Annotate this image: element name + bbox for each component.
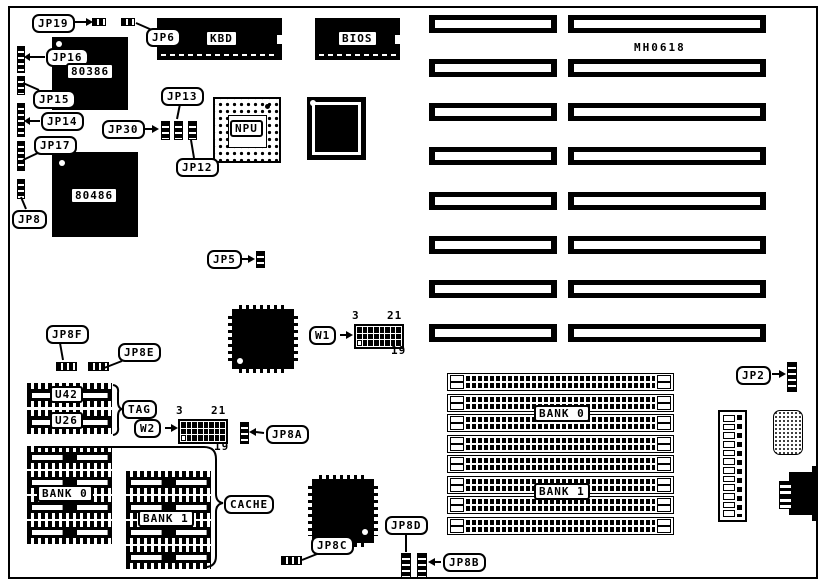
jumper-label-jp12: JP12 (176, 158, 219, 177)
jumper-label-jp17: JP17 (34, 136, 77, 155)
chip-label-u42: U42 (50, 386, 83, 403)
w1-pin3-number: 3 (352, 309, 360, 322)
cache-bank0-label: BANK 0 (37, 485, 93, 502)
jumper-label-jp6: JP6 (146, 28, 181, 47)
jumper-label-jp8b: JP8B (443, 553, 486, 572)
w1-pin19-number: 19 (391, 344, 406, 357)
board-part-number: MH0618 (634, 41, 686, 54)
w2-pin19-number: 19 (214, 440, 229, 453)
chip-label-bios: BIOS (337, 30, 378, 47)
jumper-label-jp19: JP19 (32, 14, 75, 33)
simm-bank1-label: BANK 1 (534, 483, 590, 500)
jumper-label-jp8a: JP8A (266, 425, 309, 444)
jumper-label-w2: W2 (134, 419, 161, 438)
jumper-label-jp8e: JP8E (118, 343, 161, 362)
jumper-label-jp8d: JP8D (385, 516, 428, 535)
chip-label-npu: NPU (230, 120, 263, 137)
jumper-label-w1: W1 (309, 326, 336, 345)
jumper-label-jp2: JP2 (736, 366, 771, 385)
jumper-label-jp8c: JP8C (311, 536, 354, 555)
chip-label-80386: 80386 (66, 63, 114, 80)
leader-lines (0, 0, 825, 585)
arrowheads (24, 18, 786, 566)
jumper-label-jp13: JP13 (161, 87, 204, 106)
simm-bank0-label: BANK 0 (534, 405, 590, 422)
jumper-label-jp14: JP14 (41, 112, 84, 131)
chip-label-80486: 80486 (70, 187, 118, 204)
jumper-label-jp5: JP5 (207, 250, 242, 269)
cache-bank1-label: BANK 1 (138, 510, 194, 527)
cache-label: CACHE (224, 495, 274, 514)
jumper-label-jp15: JP15 (33, 90, 76, 109)
chip-label-u26: U26 (50, 412, 83, 429)
w2-pin21-number: 21 (211, 404, 226, 417)
w1-pin21-number: 21 (387, 309, 402, 322)
w2-pin3-number: 3 (176, 404, 184, 417)
motherboard-diagram: JP19 JP6 KBD BIOS MH0618 JP16 JP15 JP14 … (0, 0, 825, 585)
jumper-label-jp30: JP30 (102, 120, 145, 139)
chip-label-kbd: KBD (205, 30, 238, 47)
tag-label: TAG (122, 400, 157, 419)
jumper-label-jp8f: JP8F (46, 325, 89, 344)
jumper-label-jp8: JP8 (12, 210, 47, 229)
